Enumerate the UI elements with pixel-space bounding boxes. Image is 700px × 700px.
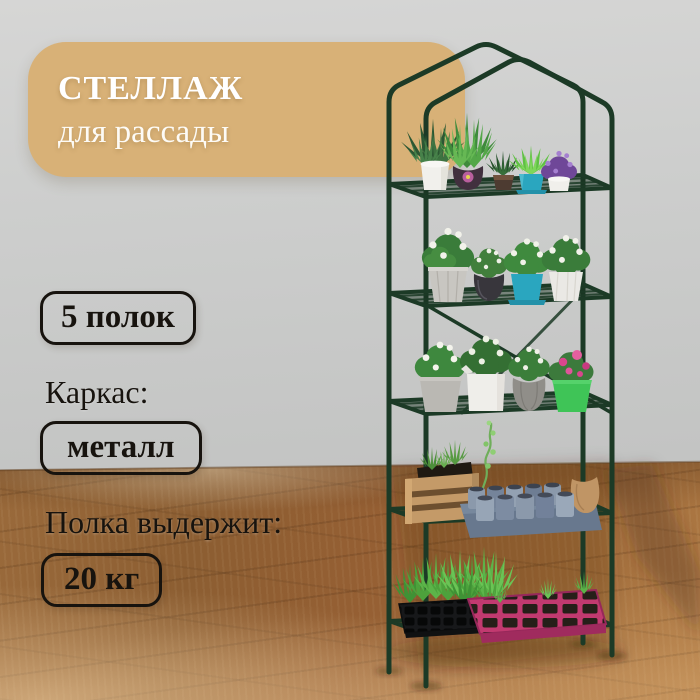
- spec-box-frame-material: металл: [40, 421, 202, 475]
- product-card: СТЕЛЛАЖ для рассады: [0, 0, 700, 700]
- spec-box-capacity: 20 кг: [41, 553, 162, 607]
- spec-box-shelf-count: 5 полок: [40, 291, 196, 345]
- spec-label-capacity: Полка выдержит:: [45, 505, 282, 539]
- spec-label-frame: Каркас:: [45, 375, 148, 409]
